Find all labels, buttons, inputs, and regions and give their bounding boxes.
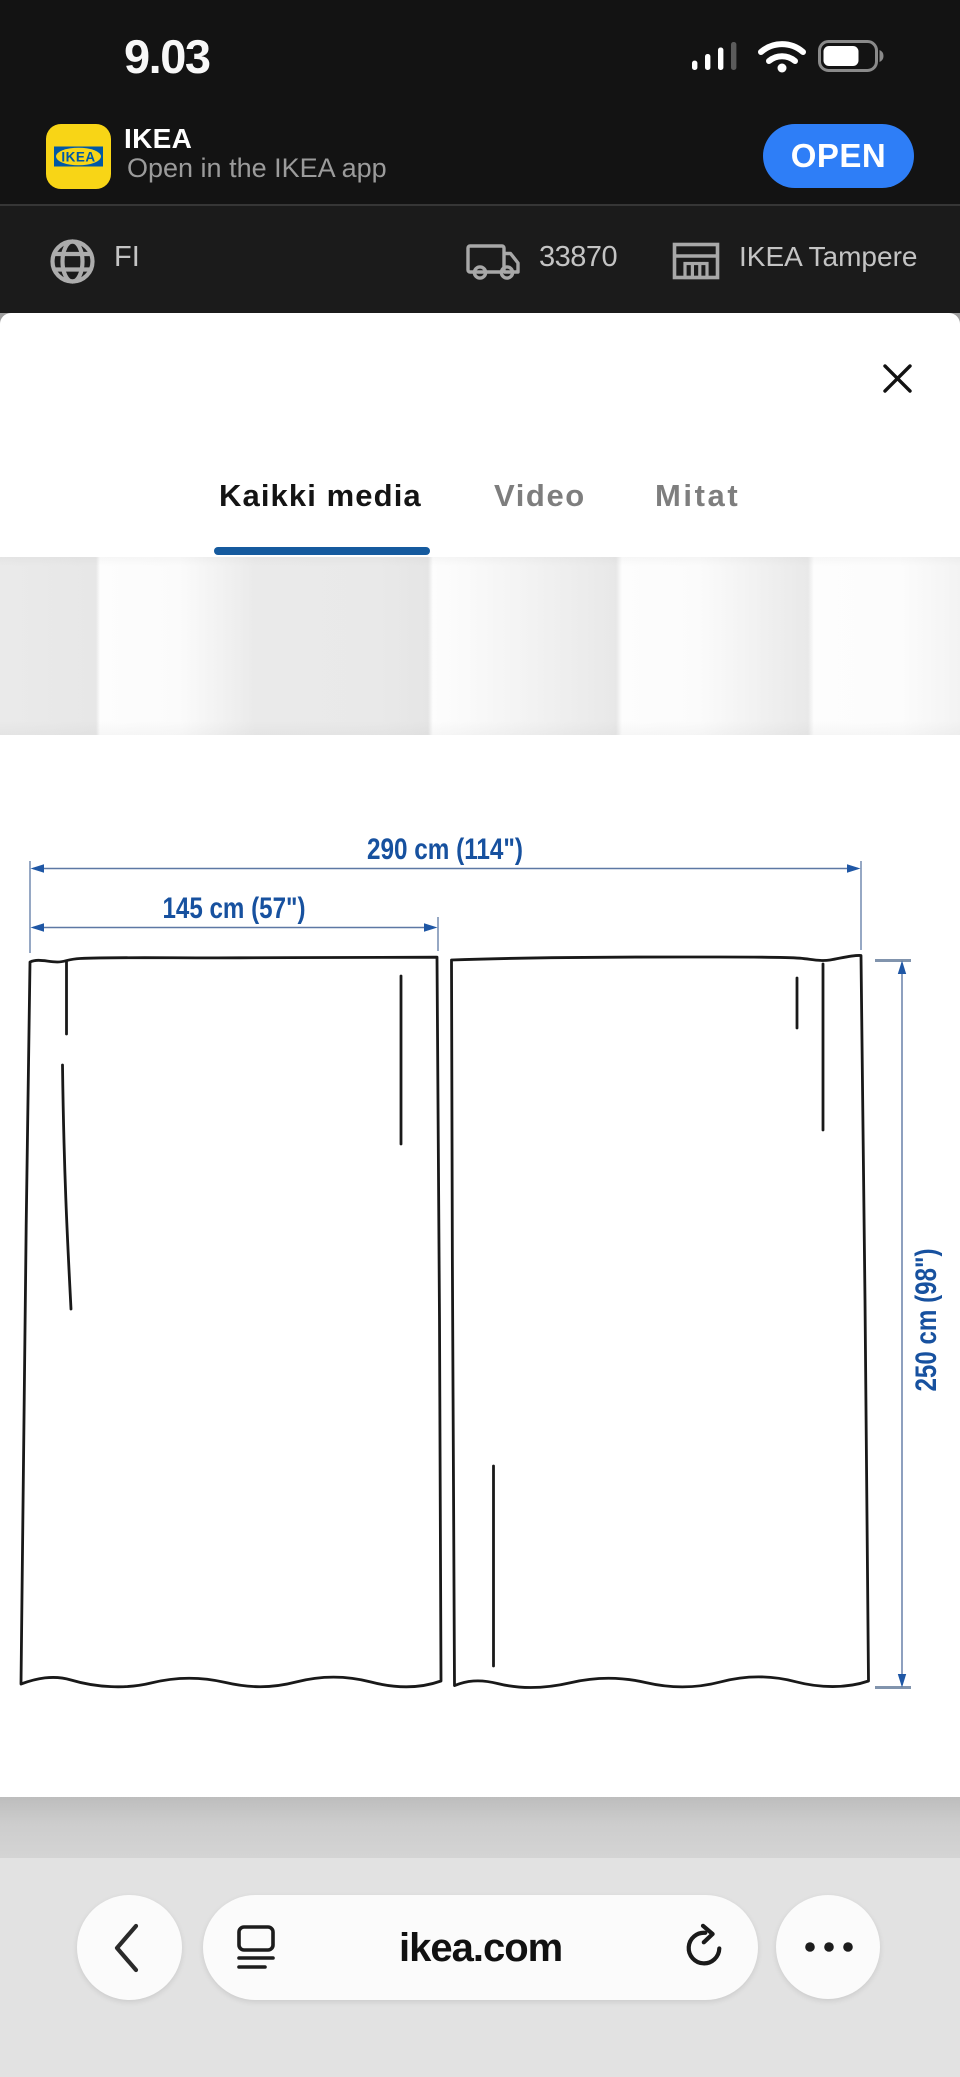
svg-text:290 cm (114"): 290 cm (114") bbox=[367, 833, 523, 866]
svg-text:IKEA: IKEA bbox=[61, 150, 95, 165]
svg-text:145 cm (57"): 145 cm (57") bbox=[163, 892, 306, 925]
svg-text:250 cm (98"): 250 cm (98") bbox=[910, 1249, 943, 1392]
